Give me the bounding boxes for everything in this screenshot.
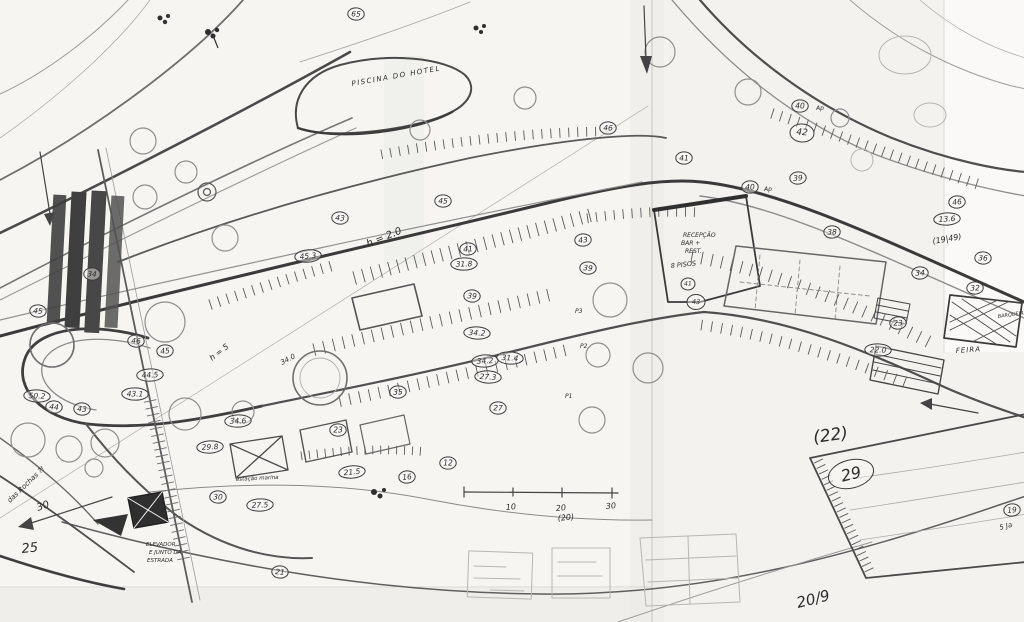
elevation-marker: 31.8: [451, 258, 478, 271]
svg-text:40: 40: [795, 102, 805, 111]
svg-text:30: 30: [213, 492, 223, 501]
elevation-marker: 27: [490, 402, 507, 415]
svg-text:43: 43: [77, 404, 88, 414]
label-elevador3: ESTRADA: [147, 558, 173, 564]
elevation-marker: 65: [347, 7, 364, 20]
svg-text:44: 44: [49, 402, 59, 412]
label-recepcao: RECEPÇÃO: [683, 232, 716, 239]
elevation-marker: 46: [127, 334, 144, 347]
label-t30: 30: [605, 501, 616, 511]
label-bar: BAR +: [681, 240, 700, 247]
svg-text:43.1: 43.1: [127, 389, 144, 398]
svg-text:45.3: 45.3: [299, 251, 317, 261]
svg-text:22.0: 22.0: [869, 345, 886, 355]
svg-text:44.5: 44.5: [141, 370, 158, 380]
label-t20: 20: [555, 503, 566, 513]
label-ap2: Ap: [815, 105, 824, 112]
elevation-marker: 41: [681, 278, 696, 291]
svg-text:65: 65: [351, 9, 361, 18]
svg-text:50.2: 50.2: [28, 391, 45, 401]
svg-text:46: 46: [952, 197, 963, 207]
svg-text:35: 35: [393, 387, 403, 396]
label-t10: 10: [505, 502, 516, 512]
elevation-marker: 43: [687, 294, 705, 309]
elevation-marker: 45: [435, 195, 452, 208]
sketch-sheet: 65464140393842404613.63634322322.0454345…: [0, 0, 1024, 622]
elevation-marker: 44.5: [137, 368, 164, 381]
elevation-marker: 32: [967, 282, 984, 295]
svg-text:46: 46: [131, 336, 141, 345]
label-elevador2: E JUNTO DA: [149, 550, 182, 556]
svg-text:23: 23: [893, 318, 903, 327]
label-rest: REST.: [685, 248, 702, 255]
elevation-marker: 36: [974, 251, 991, 264]
elevation-marker: 23: [330, 424, 346, 436]
elevation-marker: 34.6: [225, 414, 252, 427]
svg-text:39: 39: [793, 173, 803, 183]
svg-text:39: 39: [583, 263, 594, 273]
elevation-marker: 40: [742, 181, 759, 194]
svg-text:27.5: 27.5: [251, 500, 268, 510]
svg-text:34.2: 34.2: [476, 356, 493, 366]
svg-text:31.8: 31.8: [456, 259, 473, 268]
label-n20p: (20): [557, 512, 574, 523]
svg-text:38: 38: [827, 227, 837, 236]
svg-text:16: 16: [402, 472, 413, 482]
label-p3: P3: [575, 308, 583, 315]
svg-text:34: 34: [915, 268, 925, 277]
elevation-marker: 35: [390, 386, 407, 399]
svg-text:45: 45: [438, 196, 448, 205]
elevation-marker: 38: [824, 226, 841, 239]
elevation-marker: 22.0: [865, 343, 892, 356]
elevation-marker: 40: [792, 100, 808, 112]
svg-text:43: 43: [335, 213, 345, 223]
svg-text:39: 39: [467, 291, 477, 301]
svg-text:23: 23: [333, 426, 343, 435]
site-plan-drawing: 65464140393842404613.63634322322.0454345…: [0, 0, 1024, 622]
svg-text:34.6: 34.6: [229, 416, 246, 426]
elevation-marker: 27.5: [247, 498, 274, 511]
svg-text:43: 43: [692, 298, 700, 306]
svg-text:36: 36: [978, 253, 988, 262]
svg-text:21: 21: [275, 567, 285, 577]
label-ap1: Ap: [763, 186, 772, 193]
svg-text:13.6: 13.6: [938, 214, 955, 224]
svg-text:12: 12: [443, 459, 453, 468]
elevation-marker: 46: [600, 122, 617, 135]
svg-text:45: 45: [160, 346, 171, 356]
svg-text:41: 41: [463, 244, 473, 254]
svg-text:27.3: 27.3: [479, 372, 496, 382]
svg-text:43: 43: [578, 235, 589, 245]
svg-text:19: 19: [1007, 505, 1018, 515]
elevation-marker: 34: [912, 267, 929, 280]
svg-text:45: 45: [33, 306, 44, 316]
svg-text:21.5: 21.5: [343, 467, 361, 477]
label-elevador1: ELEVADOR: [146, 542, 176, 548]
svg-text:29.8: 29.8: [201, 442, 218, 452]
svg-text:42: 42: [796, 128, 808, 139]
label-n25: 25: [21, 540, 39, 557]
elevation-marker: 12: [440, 457, 456, 469]
svg-text:34.2: 34.2: [468, 328, 485, 338]
svg-text:41: 41: [679, 153, 689, 162]
paper-patches: [0, 0, 1024, 622]
label-p2: P2: [580, 343, 588, 350]
label-p1: P1: [565, 393, 572, 400]
svg-text:34: 34: [87, 269, 97, 278]
svg-text:27: 27: [493, 403, 503, 412]
svg-text:40: 40: [745, 182, 755, 191]
svg-text:31.4: 31.4: [501, 353, 518, 363]
elevation-marker: 43.1: [122, 388, 149, 401]
elevation-marker: 23: [890, 317, 907, 330]
svg-text:41: 41: [684, 280, 692, 288]
elevation-marker: 30: [210, 491, 227, 504]
svg-text:32: 32: [970, 283, 980, 292]
svg-text:46: 46: [603, 123, 613, 132]
elevation-marker: 41: [676, 152, 693, 165]
elevation-marker: 34: [83, 267, 100, 280]
